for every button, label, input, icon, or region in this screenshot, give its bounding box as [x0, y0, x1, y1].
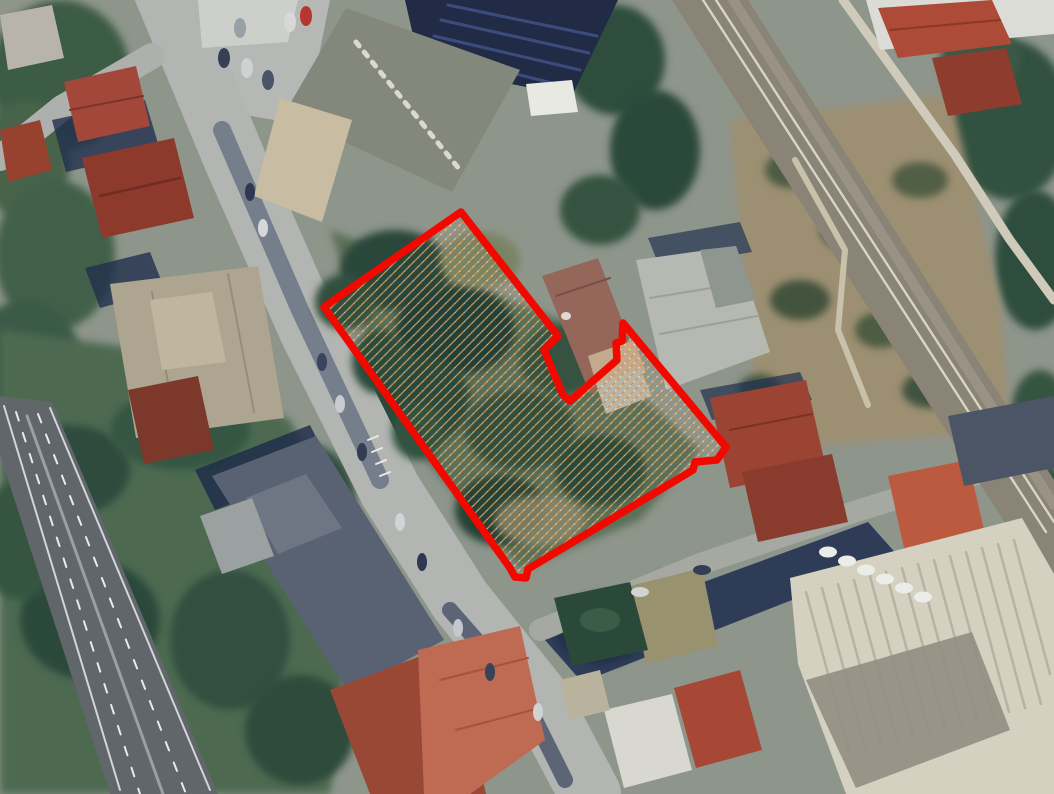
red-roof-top-right-2: [932, 48, 1022, 116]
white-van: [876, 574, 894, 585]
car: [693, 565, 711, 575]
white-van: [914, 592, 932, 603]
white-van: [895, 583, 913, 594]
satellite-map[interactable]: [0, 0, 1054, 794]
white-van: [819, 547, 837, 558]
car: [417, 553, 427, 571]
white-rooftop: [526, 80, 578, 116]
white-building-top: [198, 0, 298, 48]
car: [357, 443, 367, 461]
white-van: [857, 565, 875, 576]
white-van: [838, 556, 856, 567]
car: [258, 219, 268, 237]
shrub: [770, 280, 830, 320]
screenshot-root: [0, 0, 1054, 794]
garden-inner: [580, 608, 620, 632]
car: [284, 12, 296, 32]
car: [395, 513, 405, 531]
shrub: [892, 162, 948, 198]
car: [453, 619, 463, 637]
car: [234, 18, 246, 38]
car: [245, 183, 255, 201]
car: [533, 703, 543, 721]
trees-center-top-3: [560, 175, 640, 245]
car: [631, 587, 649, 597]
car: [241, 58, 253, 78]
car: [335, 395, 345, 413]
red-car: [300, 6, 312, 26]
car: [485, 663, 495, 681]
car: [317, 353, 327, 371]
car: [262, 70, 274, 90]
rooftop-detail: [561, 312, 571, 320]
car: [218, 48, 230, 68]
